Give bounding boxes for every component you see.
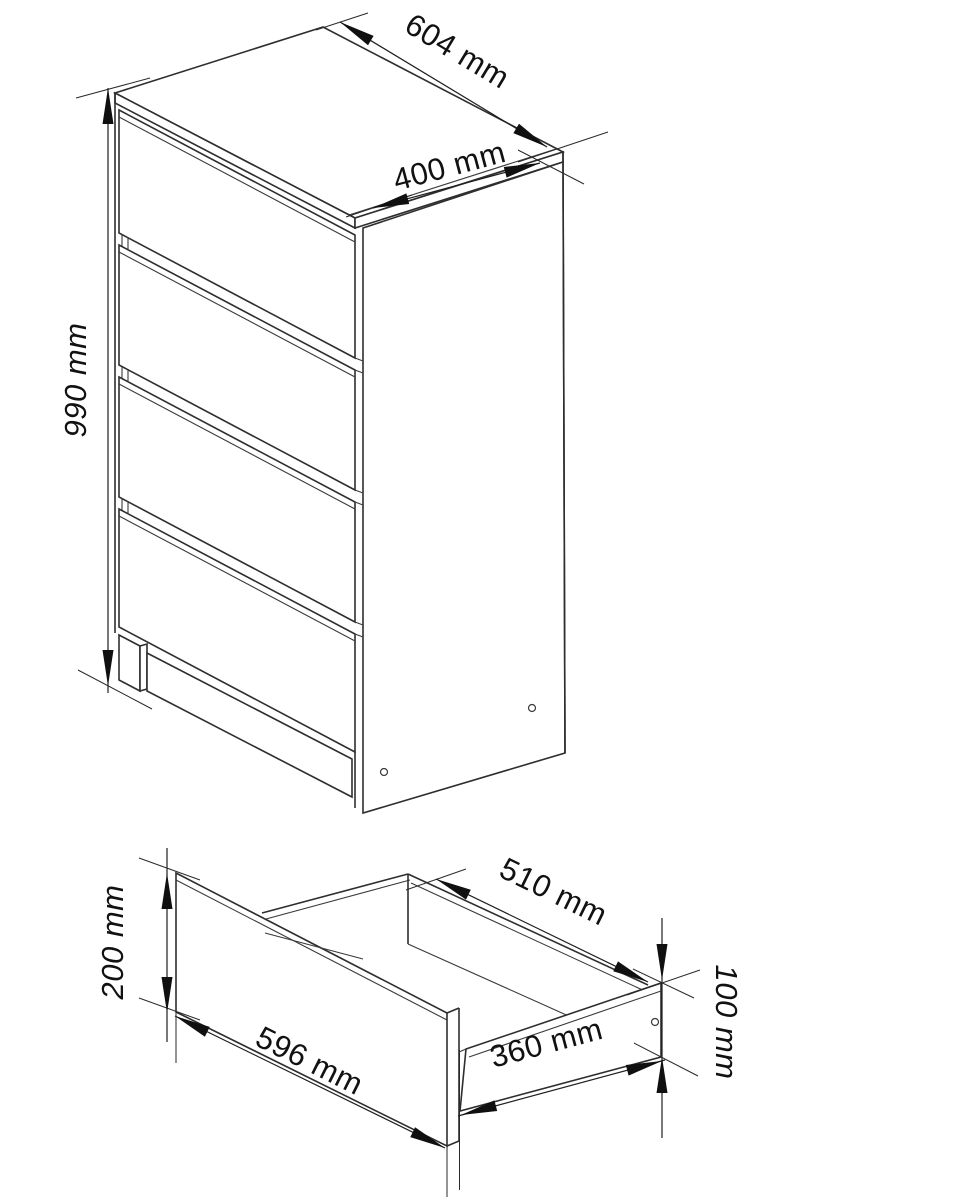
furniture-dimension-drawing: 990 mm 604 mm 400 mm xyxy=(0,0,963,1200)
technical-drawing-page: 990 mm 604 mm 400 mm xyxy=(0,0,963,1200)
arrowhead xyxy=(103,88,114,124)
arrowhead xyxy=(103,650,114,686)
arrowhead xyxy=(162,873,173,909)
front-panel-thickness-top xyxy=(447,1008,459,1013)
left-side-top-edge xyxy=(262,874,408,913)
front-panel-thickness-bottom xyxy=(447,1141,459,1146)
drawer-inner-width-label: 510 mm xyxy=(494,851,613,933)
dim-drawer-inner-width: 510 mm xyxy=(406,851,700,995)
left-side-top-edge-inner xyxy=(266,880,410,919)
cabinet-left-leg-side xyxy=(140,644,147,691)
drawer-front-outer-face xyxy=(176,873,447,1146)
extension-tick xyxy=(627,970,700,995)
cabinet-left-leg xyxy=(119,635,140,691)
cabinet-side-panel xyxy=(363,162,565,813)
extension-tick xyxy=(316,13,368,30)
cabinet-height-label: 990 mm xyxy=(58,323,93,438)
arrowhead xyxy=(162,977,173,1013)
drawer-front-height-label: 200 mm xyxy=(95,885,130,1001)
drawer-side-height-label: 100 mm xyxy=(709,965,744,1080)
extension-tick xyxy=(139,858,200,880)
drawer-gap-notches-right xyxy=(355,358,363,637)
arrowhead xyxy=(657,944,668,980)
drawer-front-panel xyxy=(176,873,459,1146)
